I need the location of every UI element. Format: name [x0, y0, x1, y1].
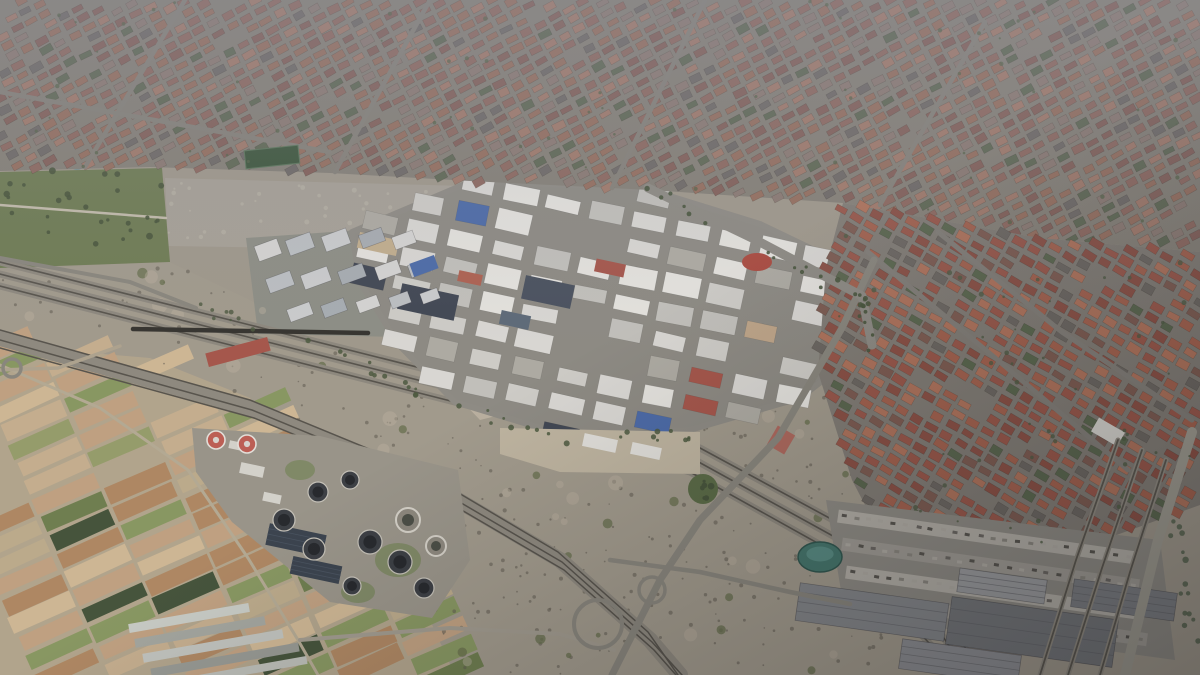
aerial-view-screenshot [0, 0, 1200, 675]
atmosphere-layer [0, 0, 1200, 675]
aerial-imagery [0, 0, 1200, 675]
vignette-overlay [0, 0, 1200, 675]
